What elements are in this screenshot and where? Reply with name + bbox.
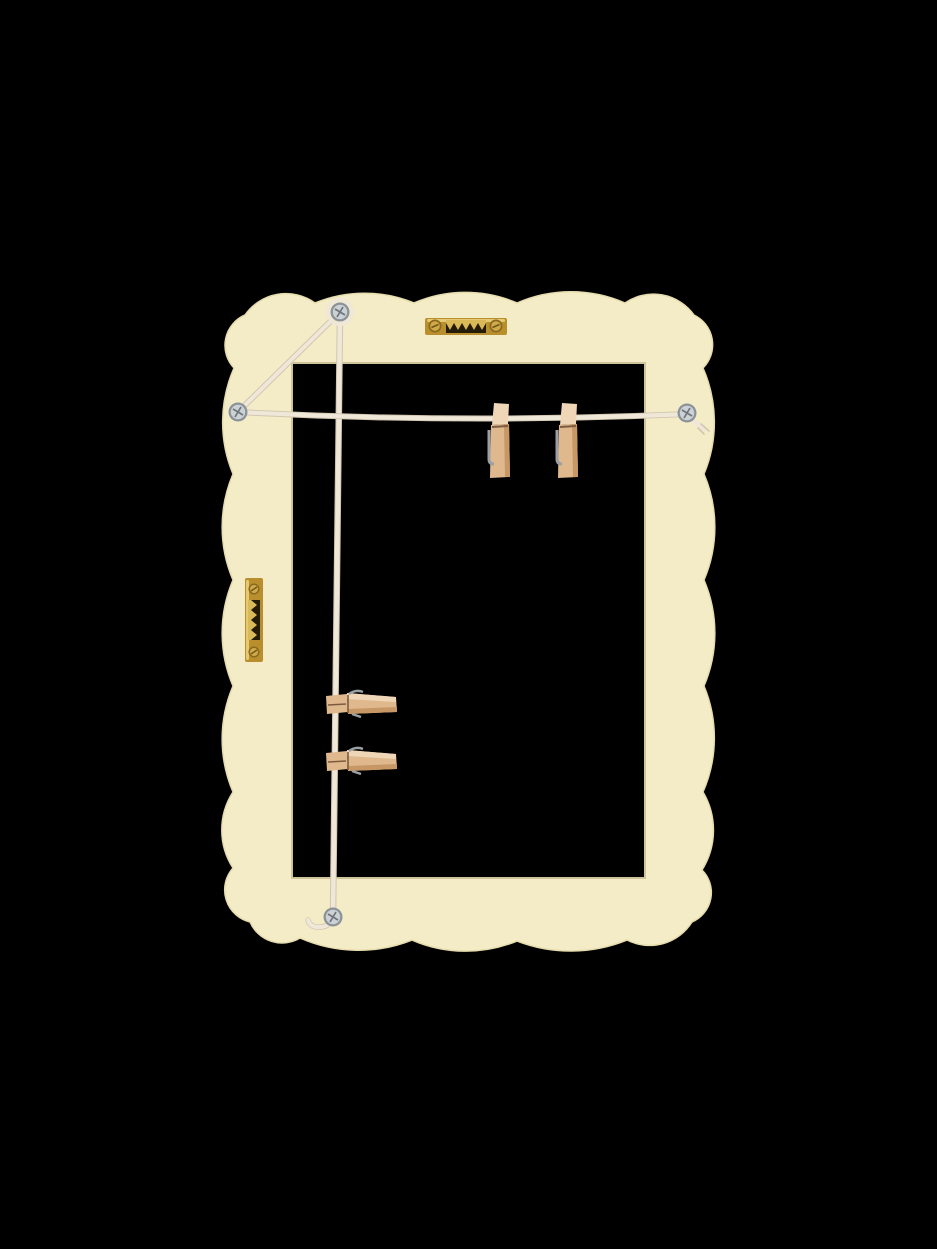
pin1-jaw-seam: [492, 426, 508, 427]
photo-background: [0, 0, 937, 1249]
top-sawtooth-hanger: [425, 318, 507, 335]
top-left-screw: [331, 303, 350, 322]
pin2-body-shadow-edge: [572, 424, 578, 477]
pin4-jaw-seam: [328, 761, 346, 762]
pin2-jaw-seam: [560, 426, 576, 427]
frame-back-photo: [0, 0, 937, 1249]
pin1-body-shadow-edge: [504, 424, 510, 477]
product-photo: [0, 0, 937, 1249]
pin3-jaw-seam: [328, 704, 346, 705]
bottom-screw: [324, 908, 343, 927]
left-screw: [229, 403, 248, 422]
pin2-head: [560, 403, 577, 425]
right-screw: [678, 404, 697, 423]
pin1-head: [492, 403, 509, 425]
side-sawtooth-hanger: [245, 578, 263, 662]
